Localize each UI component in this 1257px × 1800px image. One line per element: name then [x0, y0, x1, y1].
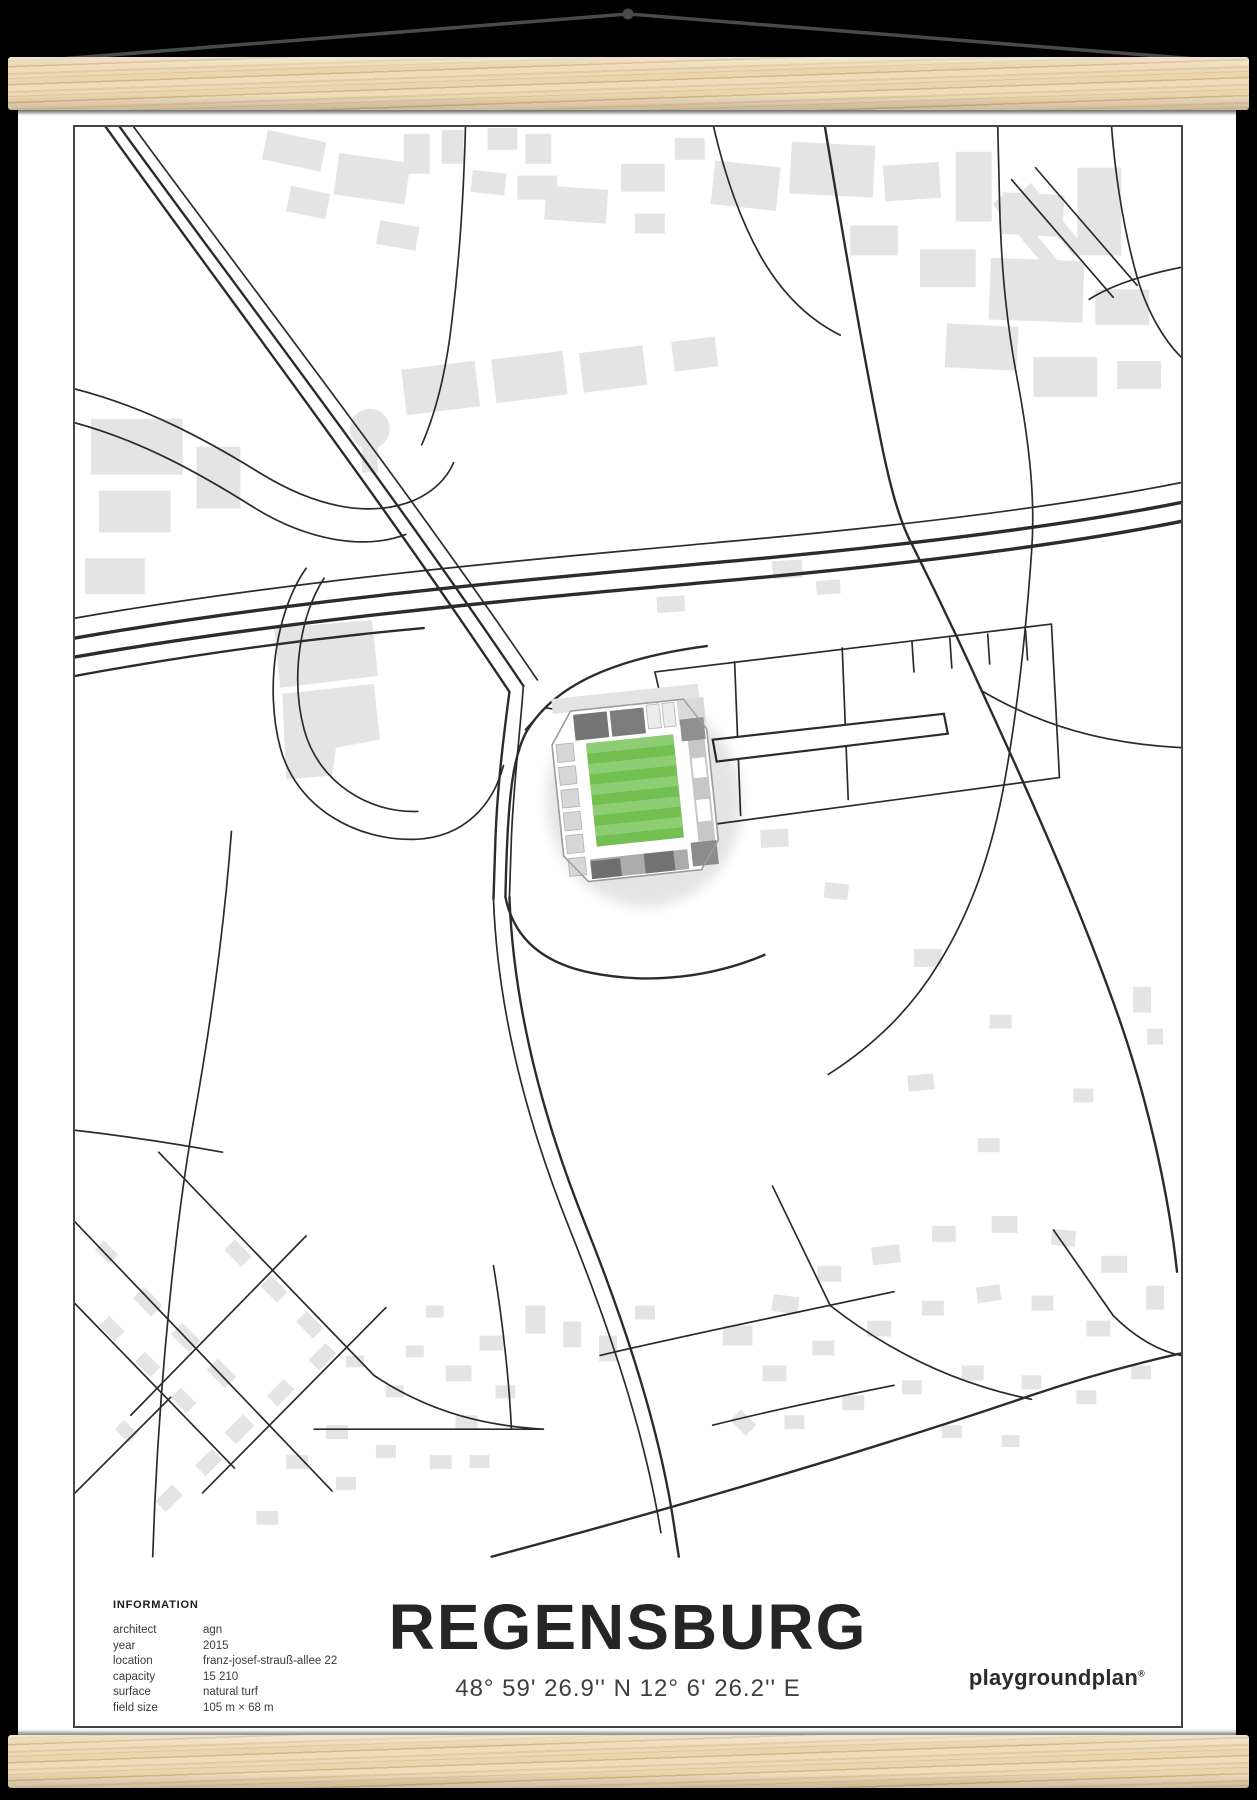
registered-mark: ® — [1138, 1669, 1145, 1679]
brand-logo: playgroundplan® — [969, 1665, 1145, 1691]
hanging-nail-dot — [623, 9, 634, 20]
stadium-map — [75, 127, 1181, 1726]
poster-title: REGENSBURG — [75, 1595, 1181, 1659]
poster-frame: INFORMATION architect agn year 2015 loca… — [73, 125, 1183, 1728]
wooden-rail-bottom — [8, 1735, 1249, 1788]
stadium-pitch — [586, 734, 684, 846]
stadium — [535, 680, 752, 916]
wooden-rail-top — [8, 57, 1249, 110]
